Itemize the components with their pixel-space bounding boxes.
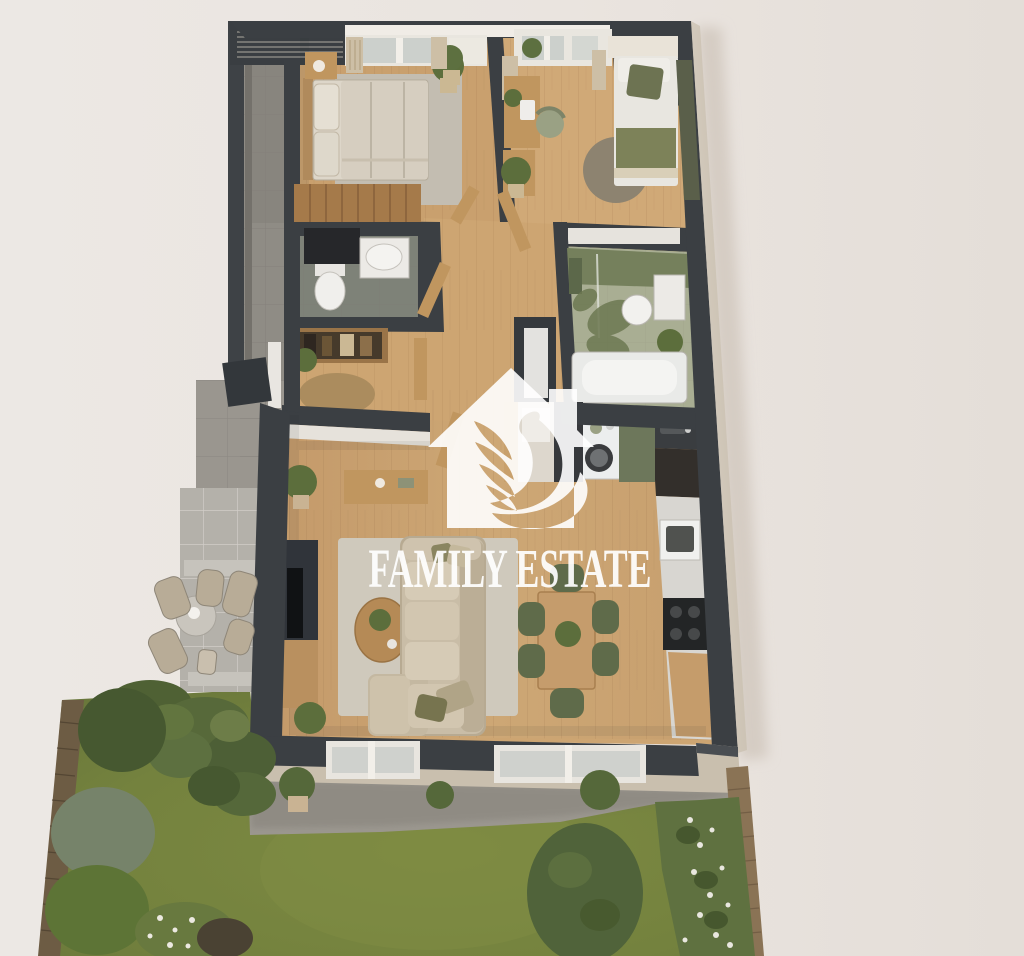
svg-text:FAMILY ESTATE: FAMILY ESTATE xyxy=(369,538,652,599)
